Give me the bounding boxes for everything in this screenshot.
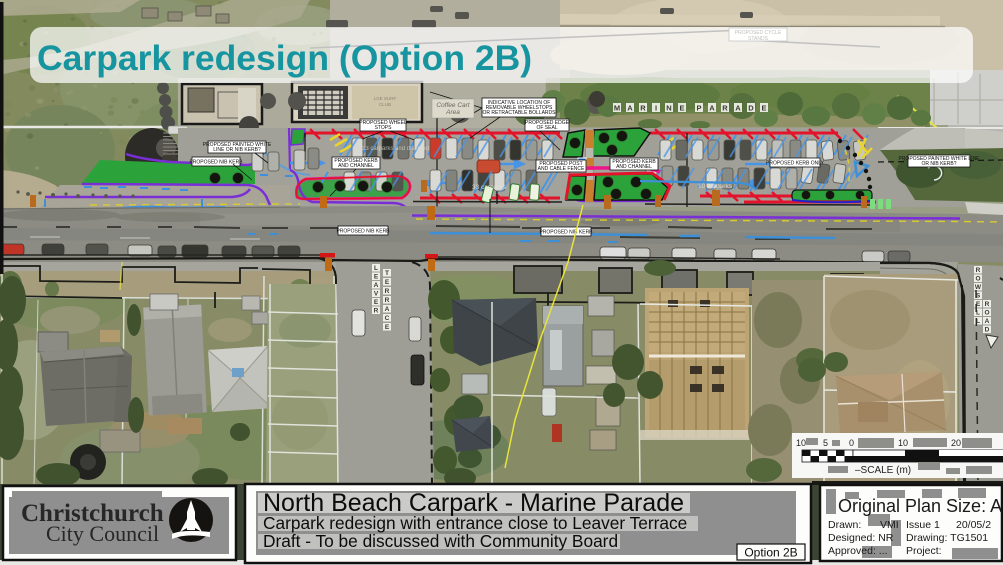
svg-text:0: 0 — [849, 438, 854, 448]
svg-text:10 carparks: 10 carparks — [698, 183, 733, 190]
svg-text:Area: Area — [445, 109, 460, 116]
svg-text:PROPOSED NIB KERB: PROPOSED NIB KERB — [336, 229, 390, 235]
svg-text:Approved: ...: Approved: ... — [828, 545, 888, 557]
svg-text:Coffee Cart: Coffee Cart — [436, 102, 470, 109]
svg-text:P: P — [696, 104, 701, 113]
svg-text:R: R — [385, 297, 390, 304]
svg-text:20: 20 — [951, 438, 961, 448]
svg-text:PROPOSED KERB ONLY: PROPOSED KERB ONLY — [766, 161, 825, 167]
svg-text:OR NIB KERB?: OR NIB KERB? — [921, 161, 956, 167]
svg-text:Carpark redesign with entrance: Carpark redesign with entrance close to … — [263, 513, 687, 533]
svg-text:R: R — [985, 301, 990, 308]
svg-text:O: O — [975, 276, 980, 283]
svg-text:AND CHANNEL: AND CHANNEL — [616, 164, 652, 170]
svg-text:A: A — [985, 318, 990, 325]
svg-text:Original Plan Size: A4: Original Plan Size: A4 — [838, 496, 1003, 516]
svg-text:R: R — [374, 308, 379, 315]
svg-text:STOPS: STOPS — [375, 125, 393, 131]
svg-text:PROPOSED NIB KERB: PROPOSED NIB KERB — [189, 160, 243, 166]
svg-text:E: E — [374, 299, 379, 306]
svg-text:O: O — [984, 310, 989, 317]
svg-text:33 carparks: 33 carparks — [472, 184, 507, 191]
svg-text:D: D — [985, 327, 990, 334]
svg-text:OR RETRACTABLE BOLLARDS: OR RETRACTABLE BOLLARDS — [483, 110, 557, 116]
svg-text:10: 10 — [898, 438, 908, 448]
svg-text:Designed: NR: Designed: NR — [828, 532, 894, 544]
svg-text:D: D — [748, 104, 754, 113]
svg-text:E: E — [385, 324, 390, 331]
svg-text:C: C — [385, 315, 390, 322]
svg-text:20/05/2: 20/05/2 — [956, 519, 991, 531]
svg-text:A: A — [735, 104, 741, 113]
svg-text:N: N — [666, 104, 671, 113]
svg-text:A: A — [385, 306, 390, 313]
svg-text:Drawing: TG1501: Drawing: TG1501 — [906, 532, 988, 544]
svg-text:Issue 1: Issue 1 — [906, 519, 940, 531]
svg-text:PROPOSED NIB KERB: PROPOSED NIB KERB — [539, 230, 593, 236]
svg-text:–SCALE (m): –SCALE (m) — [855, 465, 911, 476]
svg-text:I: I — [655, 104, 657, 113]
svg-text:Project:: Project: — [906, 545, 942, 557]
svg-text:R: R — [385, 288, 390, 295]
svg-text:L: L — [374, 265, 378, 272]
svg-text:E: E — [385, 279, 390, 286]
svg-text:M: M — [614, 104, 620, 113]
svg-text:13 carparks and disabled: 13 carparks and disabled — [362, 146, 429, 152]
svg-text:E: E — [679, 104, 684, 113]
svg-text:AND CABLE FENCE: AND CABLE FENCE — [538, 166, 585, 172]
svg-text:LINE OR NIB KERB?: LINE OR NIB KERB? — [213, 147, 261, 153]
svg-text:E: E — [761, 104, 766, 113]
svg-text:City Council: City Council — [46, 521, 159, 546]
svg-text:W: W — [975, 284, 982, 291]
svg-text:T: T — [385, 270, 389, 277]
svg-text:AND CHANNEL: AND CHANNEL — [338, 163, 374, 169]
svg-text:OF SEAL: OF SEAL — [536, 125, 557, 131]
svg-text:VMI: VMI — [880, 519, 899, 531]
svg-text:Drawn:: Drawn: — [828, 519, 861, 531]
svg-text:A: A — [627, 104, 633, 113]
svg-text:Carpark redesign (Option 2B): Carpark redesign (Option 2B) — [37, 38, 532, 78]
svg-text:LGE SURF: LGE SURF — [374, 96, 397, 101]
svg-text:Option 2B: Option 2B — [744, 546, 797, 560]
svg-text:R: R — [976, 267, 981, 274]
svg-text:5: 5 — [823, 438, 828, 448]
svg-text:V: V — [374, 291, 379, 298]
svg-text:CLUB: CLUB — [379, 102, 391, 107]
svg-text:A: A — [709, 104, 715, 113]
svg-text:R: R — [722, 104, 728, 113]
svg-text:Draft - To be discussed with C: Draft - To be discussed with Community B… — [263, 531, 618, 551]
svg-text:R: R — [640, 104, 646, 113]
svg-text:E: E — [374, 274, 379, 281]
svg-text:A: A — [374, 282, 379, 289]
svg-text:10: 10 — [796, 438, 806, 448]
